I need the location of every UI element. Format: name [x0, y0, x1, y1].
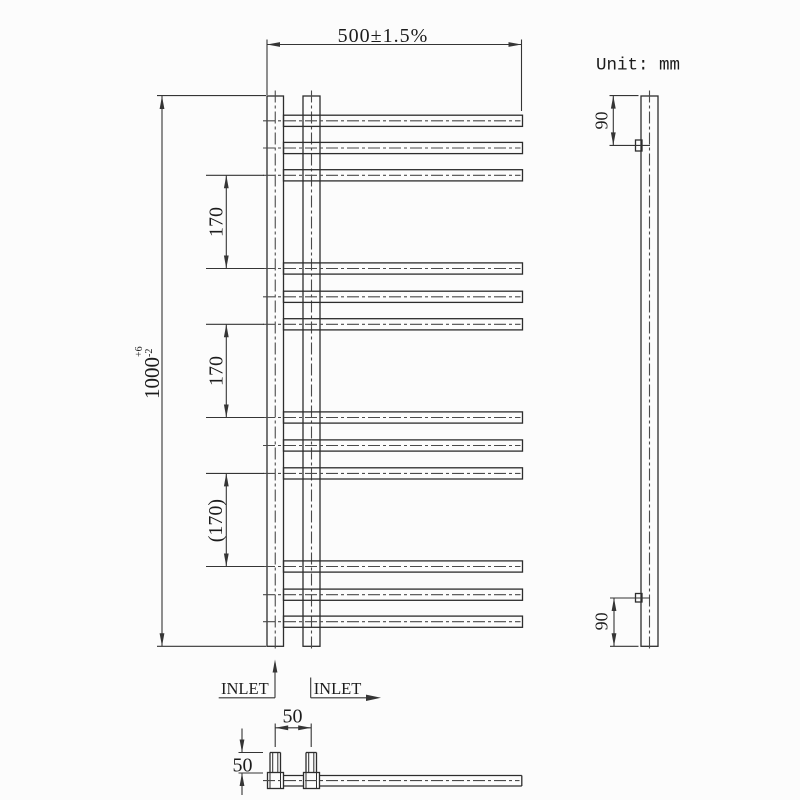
svg-text:(170): (170): [205, 499, 227, 542]
svg-text:INLET: INLET: [221, 679, 269, 698]
svg-text:170: 170: [206, 207, 228, 237]
svg-text:-2: -2: [144, 349, 155, 357]
svg-text:1000: 1000: [140, 357, 164, 399]
svg-text:90: 90: [592, 112, 612, 130]
svg-text:500±1.5%: 500±1.5%: [338, 25, 429, 47]
svg-text:50: 50: [283, 706, 303, 728]
svg-text:Unit: mm: Unit: mm: [596, 56, 680, 76]
svg-text:90: 90: [592, 612, 612, 630]
svg-text:170: 170: [206, 356, 228, 386]
svg-text:INLET: INLET: [314, 679, 362, 698]
